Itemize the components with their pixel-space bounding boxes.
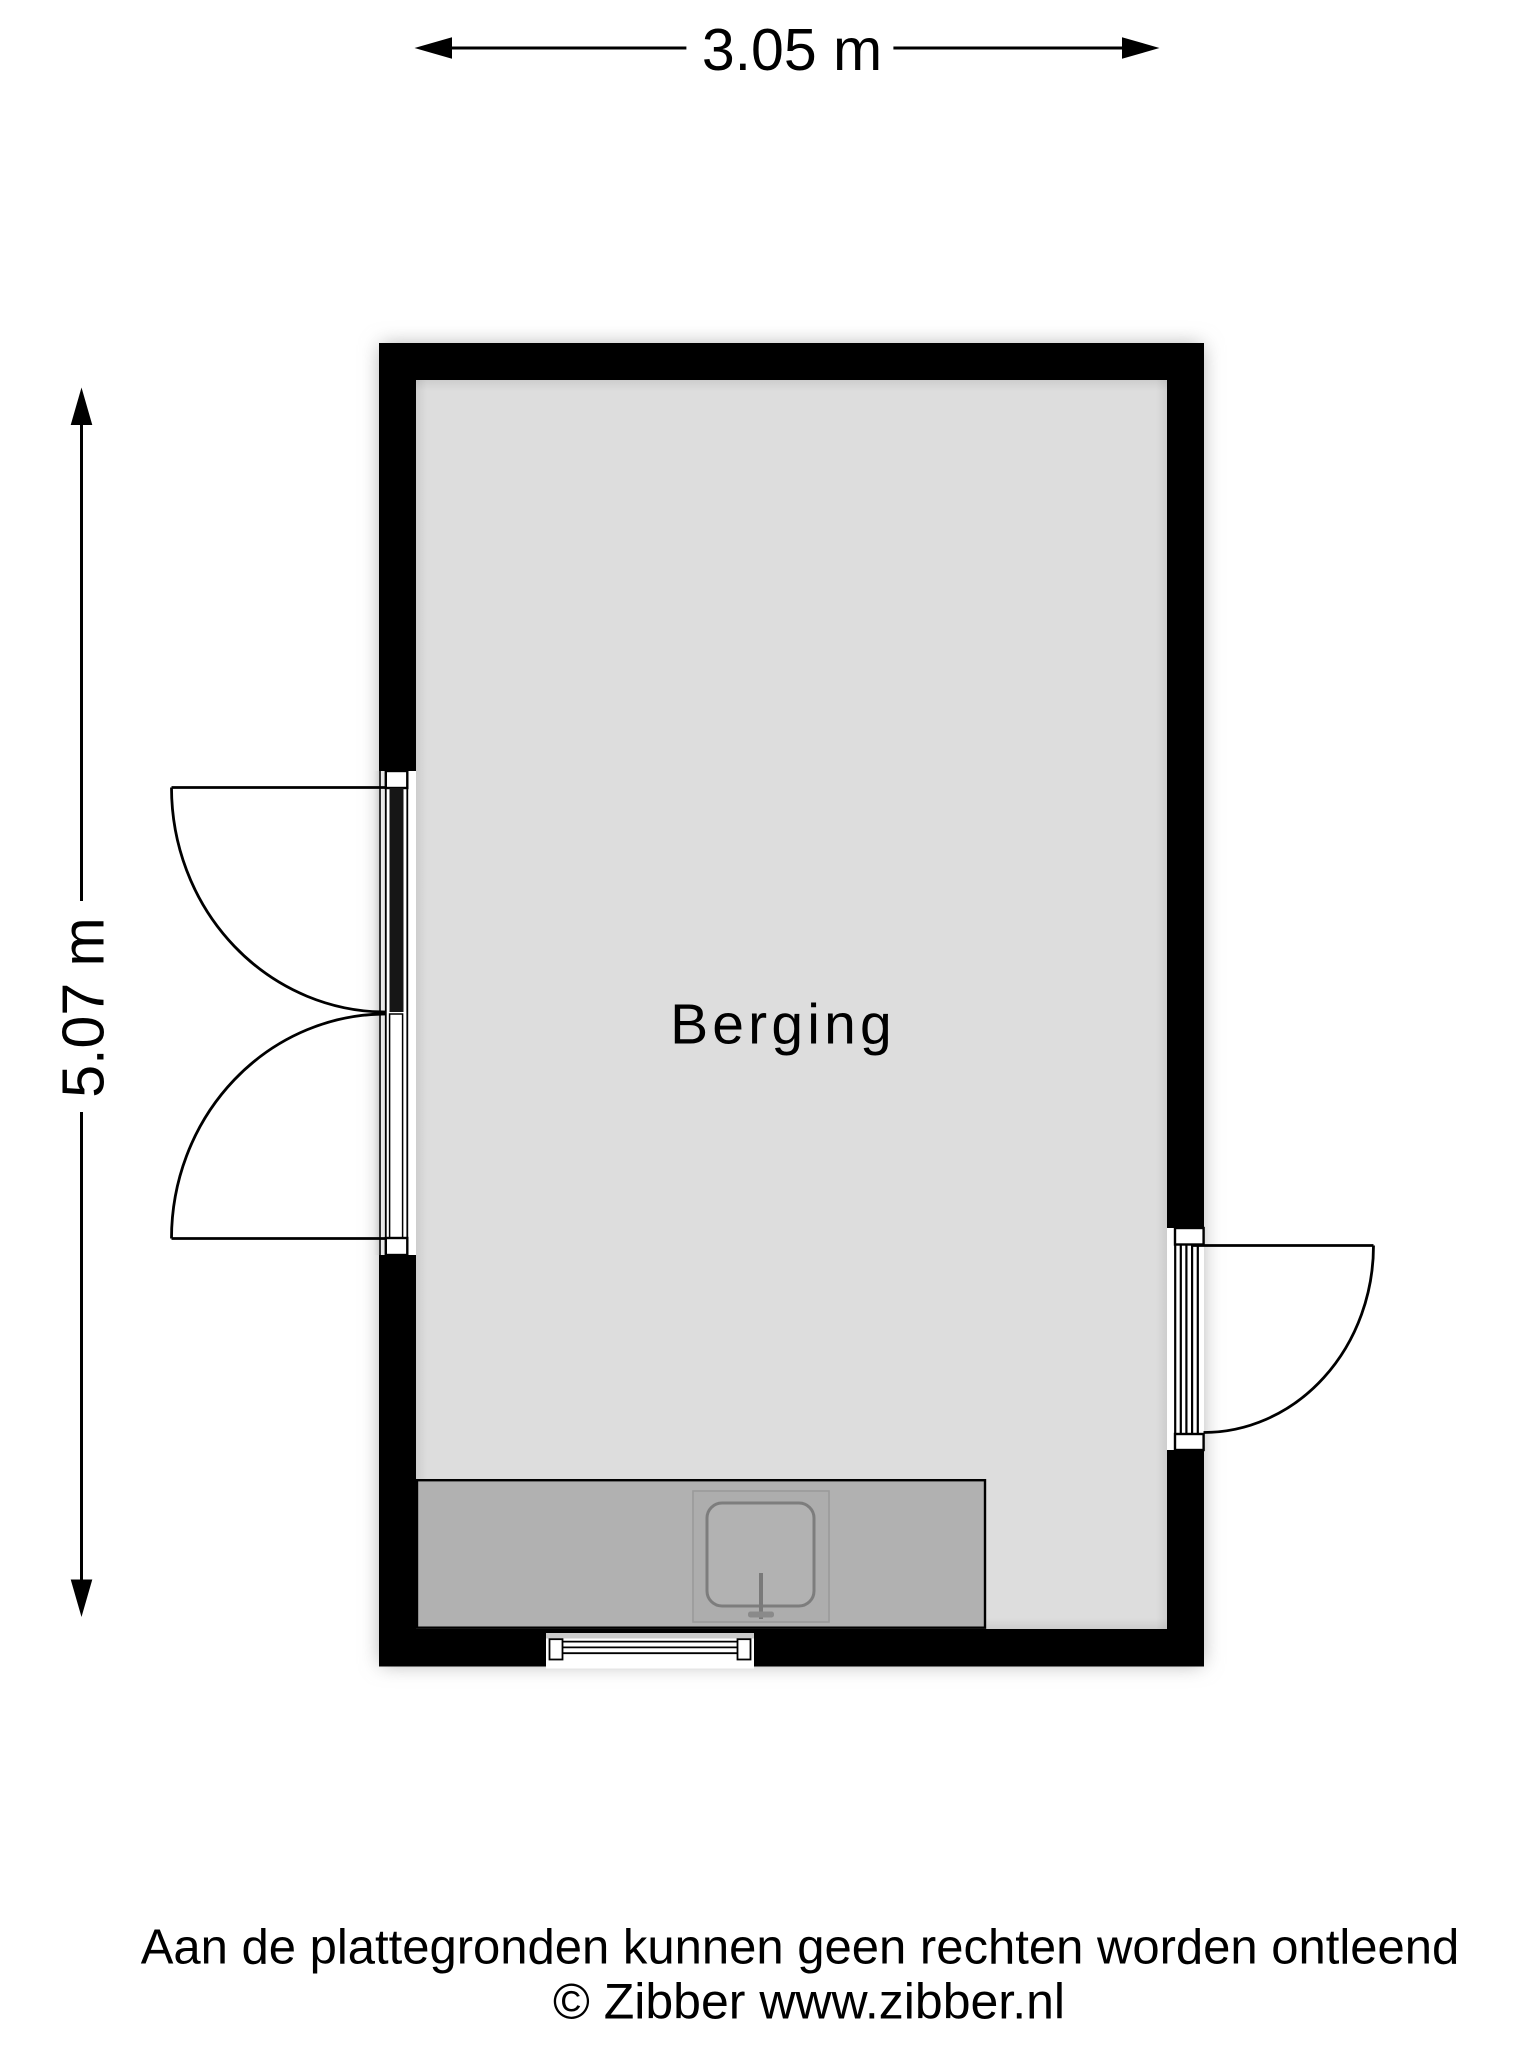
svg-text:5.07 m: 5.07 m bbox=[51, 917, 117, 1097]
svg-text:Berging: Berging bbox=[670, 992, 896, 1056]
svg-text:© Zibber www.zibber.nl: © Zibber www.zibber.nl bbox=[553, 1974, 1065, 2030]
svg-text:3.05 m: 3.05 m bbox=[702, 17, 882, 83]
svg-text:Aan de plattegronden kunnen ge: Aan de plattegronden kunnen geen rechten… bbox=[141, 1921, 1460, 1975]
